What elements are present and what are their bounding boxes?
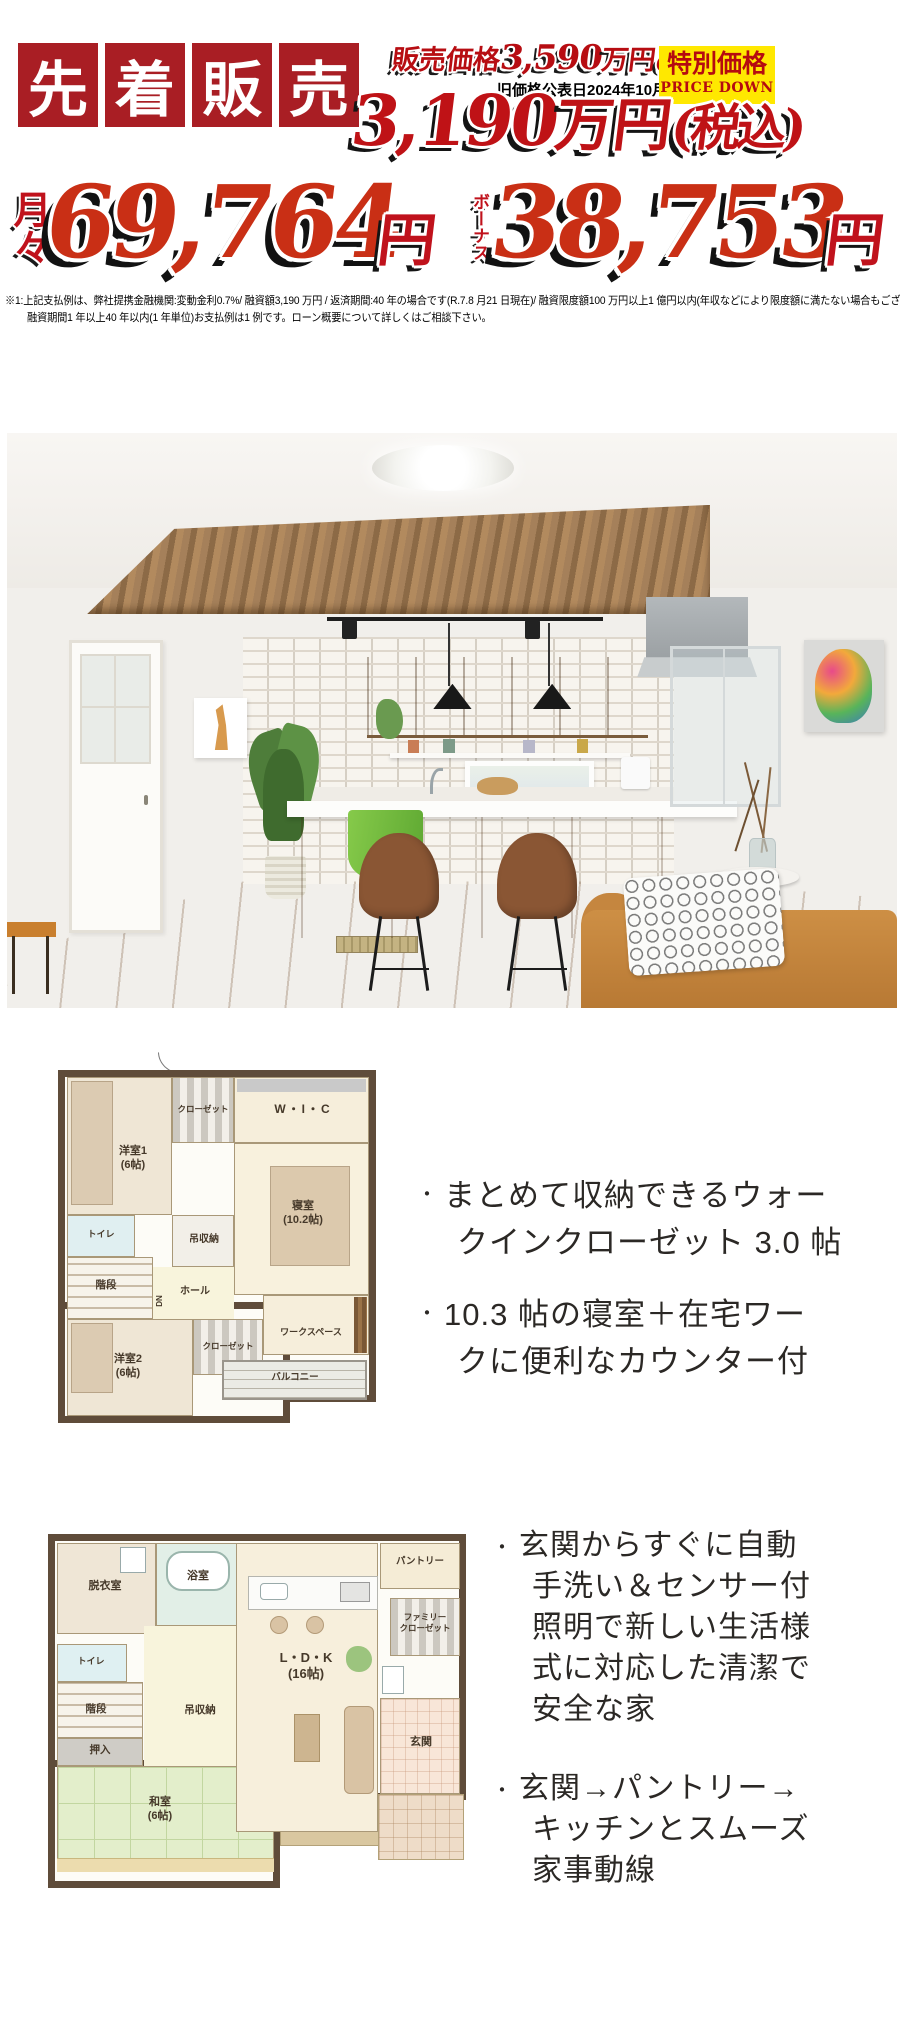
stove-symbol <box>340 1582 370 1602</box>
feature-line: 10.3 帖の寝室＋在宅ワー <box>444 1291 887 1338</box>
shelf-item <box>577 739 589 752</box>
bullet-marker: ・ <box>417 1178 437 1207</box>
hanging-plant <box>376 699 403 739</box>
feature-line: 照明で新しい生活様 <box>532 1607 892 1648</box>
room-label: クローゼット <box>193 1341 263 1352</box>
room-label: パントリー <box>380 1556 460 1568</box>
wood-bench-leg <box>12 936 15 994</box>
workspace-counter <box>354 1297 367 1353</box>
room-label: 吊収納 <box>175 1234 233 1247</box>
shelf-item <box>408 740 420 753</box>
old-price-prefix: 販売価格 <box>390 45 502 76</box>
new-price-value: 3,190 <box>347 79 561 162</box>
room-label: 階段 <box>76 1279 136 1292</box>
monthly-value: 69,764 <box>40 172 405 272</box>
feature-item-wic: ・ まとめて収納できるウォー クインクローゼット 3.0 帖 <box>417 1172 887 1266</box>
wood-bench-top <box>7 922 56 937</box>
room-label: ホール <box>170 1286 220 1299</box>
spotlight <box>525 620 540 638</box>
feature-line: 家事動線 <box>532 1850 892 1891</box>
spotlight <box>342 620 357 638</box>
floor-plan-1f: 脱衣室 浴室 トイレ 階段 押入 和室 (6帖) 吊収納 L・D・K (16帖)… <box>48 1528 478 1896</box>
feature-line: クに便利なカウンター付 <box>457 1338 887 1385</box>
old-price-value: 3,590 <box>498 38 604 78</box>
glass-partition-frame <box>723 646 725 807</box>
feature-line: 安全な家 <box>532 1689 892 1730</box>
room-label: トイレ <box>72 1229 130 1240</box>
room-label: 階段 <box>66 1703 126 1716</box>
bonus-value: 38,753 <box>486 172 851 272</box>
feature-item-flow-line: ・ 玄関→パントリー→ キッチンとスムーズ 家事動線 <box>492 1768 892 1891</box>
badge-title: 特別価格 <box>659 48 775 79</box>
flyer-page: 先 着 販 売 販売価格3,590万円(税込) 旧価格公表日2024年10月1日… <box>0 0 900 2024</box>
interior-photo <box>7 433 897 1008</box>
bed-symbol <box>71 1081 113 1205</box>
wall-shelf <box>390 753 630 759</box>
room-label: 吊収納 <box>170 1704 230 1717</box>
floor-plan-2f: 洋室1 (6帖) クローゼット W・I・C 寝室 (10.2帖) トイレ 階段 … <box>58 1050 378 1428</box>
banner-char-1: 先 <box>18 43 98 127</box>
shelf-item <box>523 740 535 753</box>
feature-line: まとめて収納できるウォー <box>444 1172 887 1219</box>
feature-item-bedroom: ・ 10.3 帖の寝室＋在宅ワー クに便利なカウンター付 <box>417 1291 887 1385</box>
banner-char-2: 着 <box>105 43 185 127</box>
door-glass-mullion <box>114 654 116 763</box>
feature-line: キッチンとスムーズ <box>532 1809 892 1850</box>
pendant-stem <box>548 623 550 686</box>
dog-art-figure <box>815 649 872 724</box>
ceiling-light <box>372 445 514 491</box>
basket <box>477 777 518 795</box>
washer-symbol <box>120 1547 146 1573</box>
patterned-cushion <box>622 868 784 976</box>
room-label: 脱衣室 <box>63 1580 147 1594</box>
stool-footrest <box>510 968 567 970</box>
shelf-item <box>443 739 455 753</box>
room-label: ワークスペース <box>261 1327 361 1338</box>
room-label: 和室 (6帖) <box>110 1796 210 1824</box>
room-label: 浴室 <box>166 1570 230 1584</box>
feature-item-clean-home: ・ 玄関からすぐに自動 手洗い＆センサー付 照明で新しい生活様 式に対応した清潔… <box>492 1525 892 1730</box>
monthly-unit: 円 <box>374 212 439 270</box>
room-label: トイレ <box>62 1656 120 1667</box>
bullet-marker: ・ <box>492 1774 512 1803</box>
room-label: DN <box>155 1291 165 1311</box>
room-label: 玄関 <box>396 1736 446 1750</box>
wic-hanger-pipe <box>237 1079 366 1092</box>
bullet-marker: ・ <box>492 1531 512 1560</box>
plant-leaves <box>263 749 304 841</box>
sink-symbol <box>260 1583 288 1600</box>
counter-appliance <box>621 757 649 789</box>
bullet-marker: ・ <box>417 1297 437 1326</box>
handwash-symbol <box>382 1666 404 1694</box>
room-label: 押入 <box>70 1744 130 1757</box>
glass-partition <box>670 646 781 807</box>
door-glass-mullion <box>80 706 151 708</box>
feature-line: 玄関からすぐに自動 <box>519 1525 892 1566</box>
disclaimer-line-2: 融資期間1 年以上40 年以内(1 年単位)お支払例は1 例です。ローン概要につ… <box>27 309 492 325</box>
entrance-porch <box>378 1794 464 1860</box>
door-handle <box>144 795 148 805</box>
room-label: バルコニー <box>250 1372 340 1384</box>
feature-line: クインクローゼット 3.0 帖 <box>457 1219 887 1266</box>
sofa-symbol <box>344 1706 374 1794</box>
stool-footrest <box>372 968 429 970</box>
new-price-line: 3,190万円(税込) <box>348 86 808 156</box>
wood-bench-leg <box>46 936 49 994</box>
feature-line: 式に対応した清潔で <box>532 1648 892 1689</box>
room-label: ファミリー クローゼット <box>390 1612 460 1633</box>
pendant-stem <box>448 623 450 686</box>
upper-cabinets <box>367 657 647 738</box>
table-symbol <box>294 1714 320 1762</box>
room-hall-1f <box>144 1626 236 1766</box>
chair-symbol <box>306 1616 324 1634</box>
room-label: クローゼット <box>172 1104 234 1115</box>
room-label: L・D・K (16帖) <box>256 1650 356 1683</box>
room-label: 寝室 (10.2帖) <box>258 1200 348 1228</box>
new-price-unit: 万円 <box>552 91 676 159</box>
banner-char-3: 販 <box>192 43 272 127</box>
light-track <box>327 617 603 621</box>
washitsu-veranda <box>57 1858 274 1872</box>
feature-line: 玄関→パントリー→ <box>519 1768 892 1809</box>
old-price-unit: 万円 <box>600 45 658 76</box>
bonus-unit: 円 <box>822 212 887 270</box>
chair-symbol <box>270 1616 288 1634</box>
feature-line: 手洗い＆センサー付 <box>532 1566 892 1607</box>
room-label: 洋室1 (6帖) <box>88 1145 178 1173</box>
disclaimer-line-1: ※1:上記支払例は、弊社提携金融機関:変動金利0.7%/ 融資額3,190 万円… <box>5 292 900 308</box>
room-label: 洋室2 (6帖) <box>83 1353 173 1381</box>
banner-char-4: 売 <box>279 43 359 127</box>
new-price-tax: (税込) <box>668 98 807 157</box>
room-label: W・I・C <box>258 1102 348 1117</box>
